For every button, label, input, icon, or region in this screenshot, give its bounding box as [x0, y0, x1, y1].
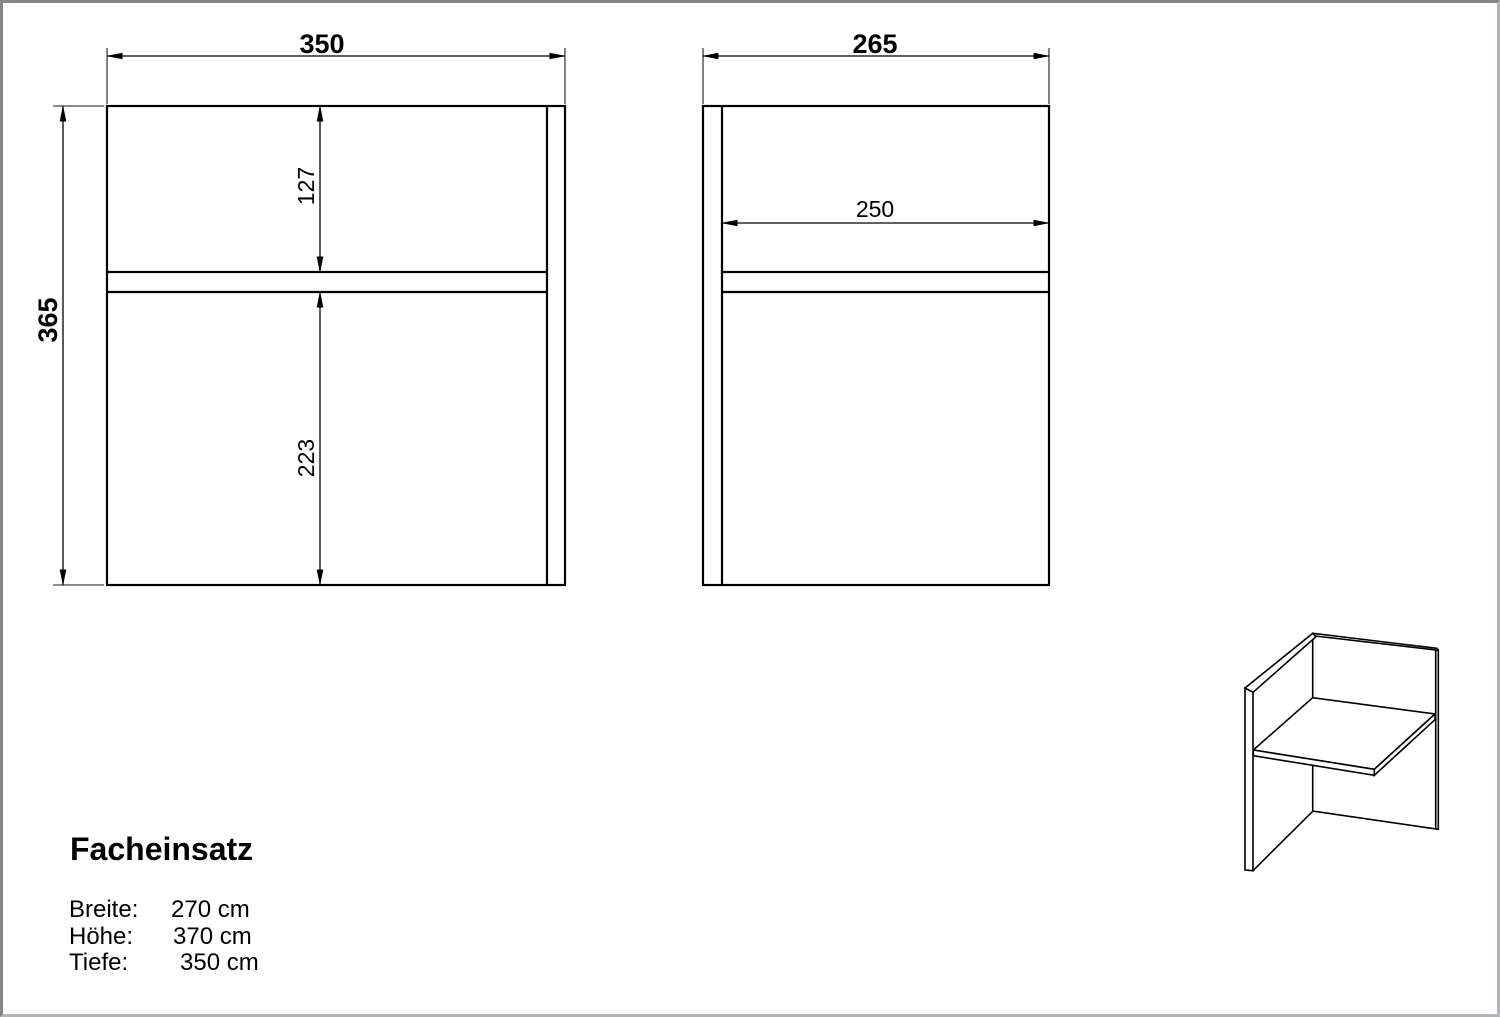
technical-drawing-sheet: 350 365 127 223 265 [0, 0, 1500, 1017]
spec-value-tiefe: 350 cm [171, 950, 259, 977]
spec-row-tiefe: Tiefe: 350 cm [69, 950, 259, 977]
front-height-dimension-label: 365 [33, 297, 63, 342]
spec-label-hoehe: Höhe: [69, 924, 171, 951]
isometric-view [1245, 633, 1438, 870]
front-view-dimensions: 350 365 127 223 [33, 29, 565, 585]
front-lower-compartment-dimension-label: 223 [293, 439, 319, 477]
product-title: Facheinsatz [70, 833, 253, 865]
spec-label-breite: Breite: [69, 897, 171, 924]
side-view-outline [703, 106, 1049, 585]
side-view-dimensions: 265 250 [703, 29, 1049, 223]
front-width-dimension-label: 350 [299, 29, 344, 59]
spec-row-hoehe: Höhe: 370 cm [69, 924, 259, 951]
spec-value-breite: 270 cm [171, 897, 259, 924]
front-upper-compartment-dimension-label: 127 [293, 167, 319, 205]
spec-value-hoehe: 370 cm [171, 924, 259, 951]
front-view-outline [107, 106, 565, 585]
side-shelf-depth-dimension-label: 250 [856, 196, 894, 222]
spec-table: Breite: 270 cm Höhe: 370 cm Tiefe: 350 c… [69, 897, 259, 977]
spec-row-breite: Breite: 270 cm [69, 897, 259, 924]
side-depth-dimension-label: 265 [852, 29, 897, 59]
spec-label-tiefe: Tiefe: [69, 950, 171, 977]
